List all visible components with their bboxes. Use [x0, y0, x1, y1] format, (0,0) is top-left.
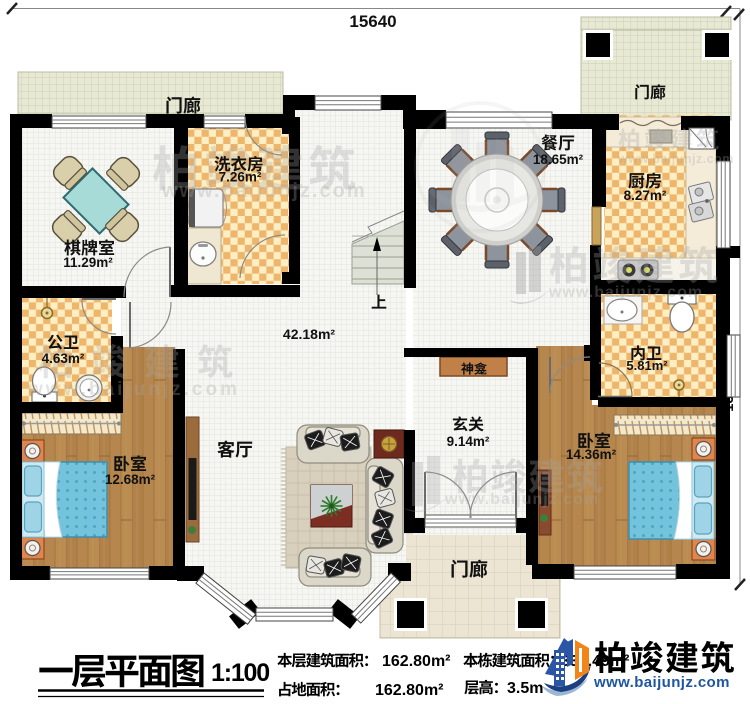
svg-text:162.80m²: 162.80m²: [382, 653, 451, 670]
svg-text:3.5m: 3.5m: [507, 680, 543, 697]
svg-text:www.baijunjz.com: www.baijunjz.com: [548, 284, 703, 301]
svg-text:8.27m²: 8.27m²: [624, 188, 667, 203]
svg-text:4.63m²: 4.63m²: [42, 351, 85, 366]
svg-text:1:100: 1:100: [211, 659, 269, 687]
svg-text:18.65m²: 18.65m²: [533, 152, 584, 167]
svg-text:42.18m²: 42.18m²: [283, 326, 335, 342]
svg-text:5.81m²: 5.81m²: [626, 358, 668, 373]
svg-text:www.baijunjz.com: www.baijunjz.com: [593, 674, 730, 691]
svg-text:www.baijunjz.com: www.baijunjz.com: [617, 152, 734, 166]
svg-text:www.baijunjz.com: www.baijunjz.com: [27, 379, 240, 400]
svg-text:www.baijunjz.com: www.baijunjz.com: [444, 491, 599, 508]
svg-text:11.29m²: 11.29m²: [63, 255, 113, 270]
svg-text:12.68m²: 12.68m²: [105, 472, 156, 487]
svg-text:14.36m²: 14.36m²: [566, 447, 617, 462]
svg-text:15640: 15640: [349, 12, 396, 31]
svg-text:www.baijunjz.com: www.baijunjz.com: [161, 180, 367, 202]
svg-text:9.14m²: 9.14m²: [447, 434, 490, 449]
svg-text:162.80m²: 162.80m²: [375, 682, 444, 699]
svg-text:7.26m²: 7.26m²: [219, 170, 262, 185]
